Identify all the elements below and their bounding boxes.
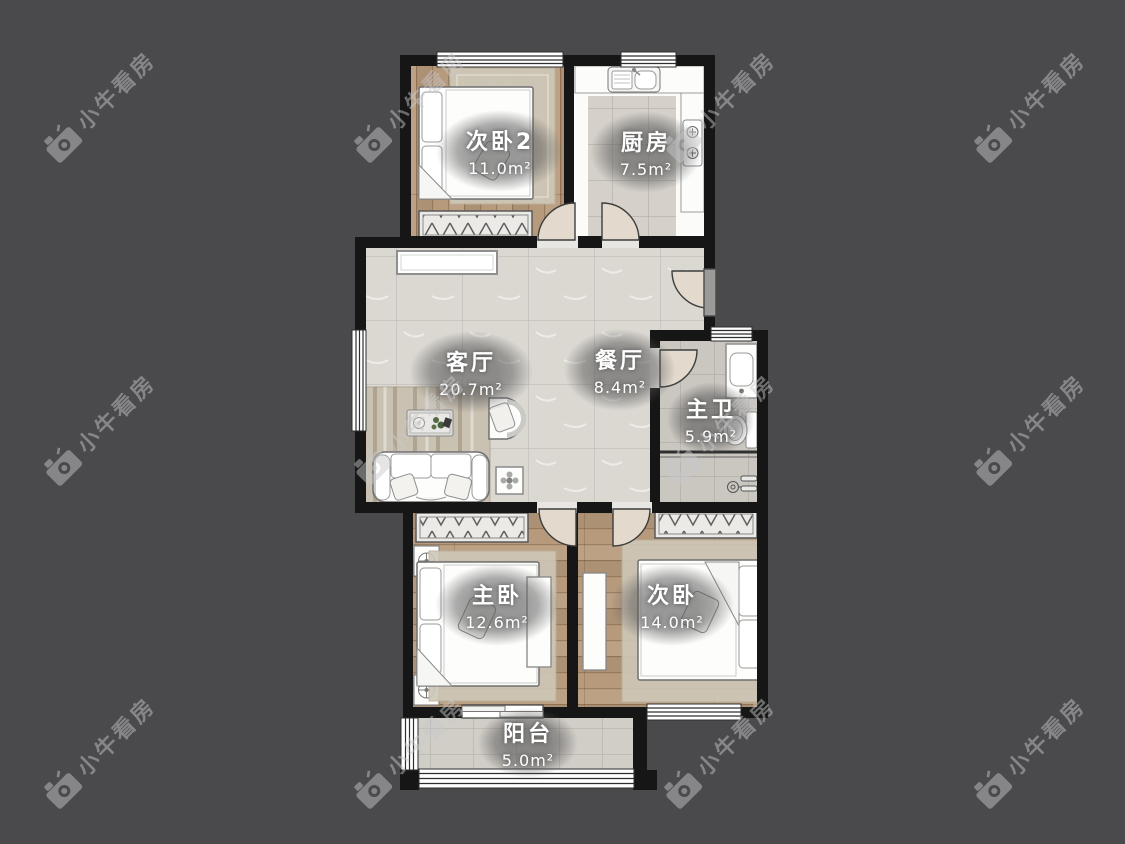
armchair-icon <box>488 398 523 439</box>
balcony-side-window <box>401 718 418 770</box>
bedroom-wardrobe-icon <box>655 510 757 538</box>
kitchen-sink-icon <box>608 67 660 92</box>
master-nightstand-icon <box>527 577 551 667</box>
bedroom-bed-icon <box>638 560 763 680</box>
coffee-table-icon <box>407 410 453 436</box>
plant-table-icon <box>496 467 523 494</box>
toilet-icon <box>723 412 757 448</box>
bedroom-cabinet-icon <box>583 573 606 670</box>
living-window <box>352 330 366 431</box>
balcony-floor <box>417 718 633 770</box>
balcony-sliding-door <box>462 705 543 718</box>
tv-cabinet-icon <box>397 251 497 274</box>
bedroom2-bed-icon <box>419 87 533 199</box>
bedroom2-window <box>437 52 563 67</box>
master-bed-icon <box>417 562 539 686</box>
kitchen-window <box>621 52 676 67</box>
floorplan-image: 次卧2 11.0m² 厨房 7.5m² 客厅 20.7m² 餐厅 8.4m² 主… <box>0 0 1125 844</box>
floorplan-drawing <box>0 0 1125 844</box>
bathroom-window <box>711 327 752 341</box>
balcony-window <box>419 769 634 788</box>
bedroom-window <box>647 704 741 720</box>
bathroom-vanity-icon <box>726 344 757 398</box>
kitchen-cooktop-icon <box>683 120 702 166</box>
master-wardrobe-icon <box>416 513 528 542</box>
sofa-icon <box>373 452 489 502</box>
bedroom2-wardrobe-icon <box>419 211 532 239</box>
